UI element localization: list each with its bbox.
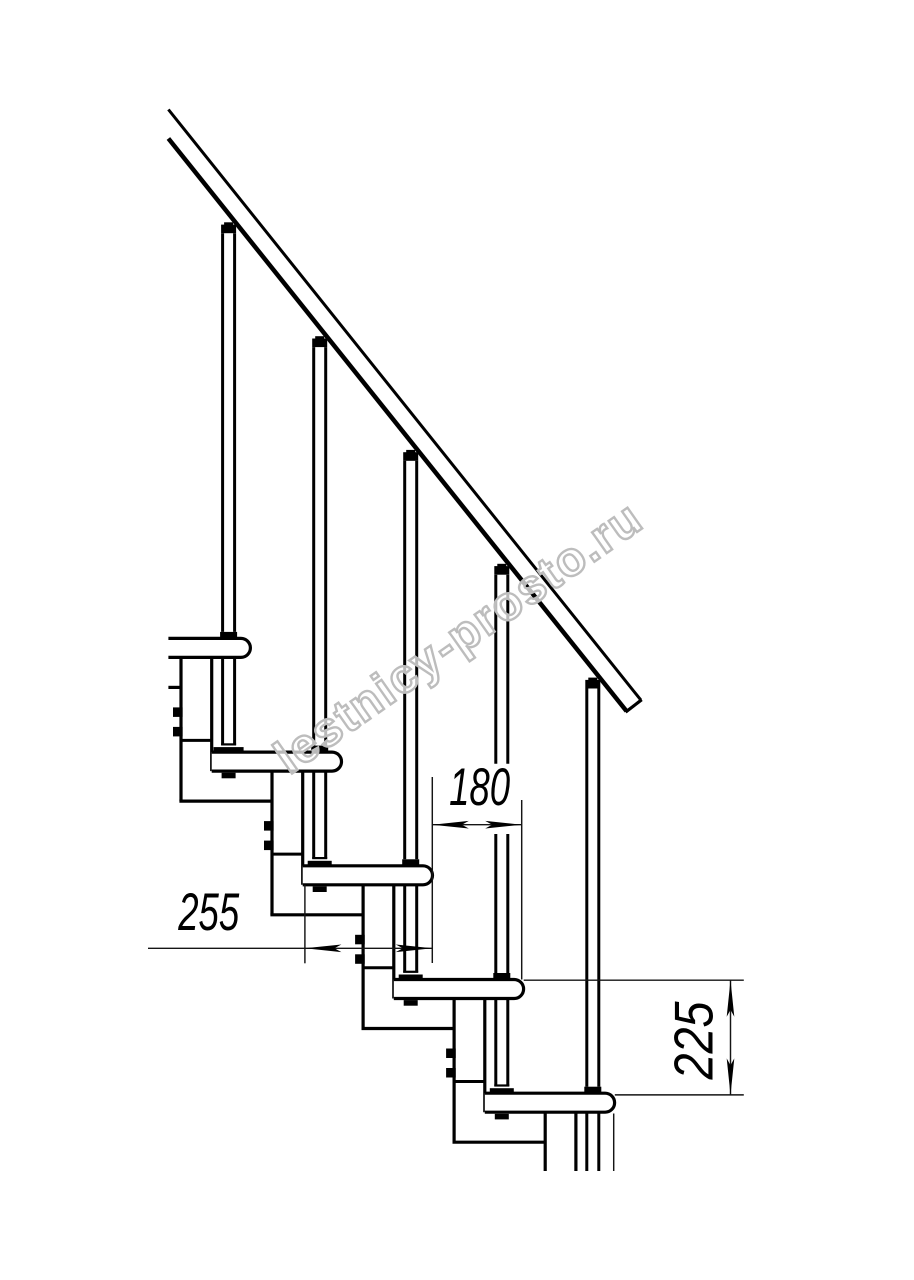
svg-text:180: 180 xyxy=(449,758,510,817)
svg-text:225: 225 xyxy=(663,1001,725,1080)
svg-text:255: 255 xyxy=(178,883,240,942)
